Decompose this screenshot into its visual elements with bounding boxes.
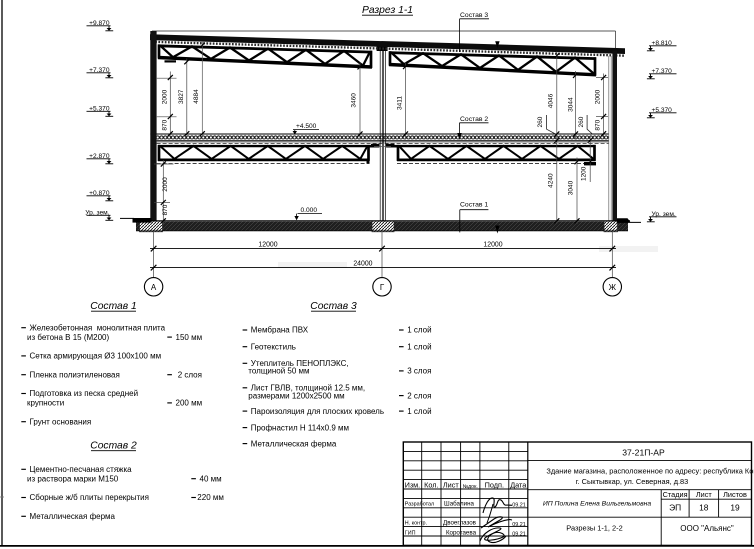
svg-text:Н. контр.: Н. контр. bbox=[405, 521, 427, 527]
svg-text:Пленка полиэтиленовая: Пленка полиэтиленовая bbox=[30, 370, 120, 379]
svg-text:ГИП: ГИП bbox=[405, 530, 416, 536]
svg-text:12000: 12000 bbox=[483, 242, 502, 249]
svg-text:Разработал: Разработал bbox=[405, 501, 434, 507]
svg-text:ООО "Альянс": ООО "Альянс" bbox=[680, 524, 734, 533]
svg-text:3460: 3460 bbox=[351, 93, 358, 108]
svg-text:24000: 24000 bbox=[353, 260, 372, 267]
svg-text:2000: 2000 bbox=[161, 89, 168, 104]
svg-text:Мембрана ПВХ: Мембрана ПВХ bbox=[251, 326, 309, 335]
svg-text:Состав 2: Состав 2 bbox=[460, 116, 488, 123]
svg-text:Изм.: Изм. bbox=[405, 481, 421, 490]
svg-text:Шабалина: Шабалина bbox=[444, 500, 474, 507]
svg-text:4046: 4046 bbox=[548, 93, 555, 108]
svg-text:Состав 3: Состав 3 bbox=[460, 12, 488, 19]
svg-text:3044: 3044 bbox=[567, 97, 574, 112]
svg-text:Сборные ж/б плиты перекрытия: Сборные ж/б плиты перекрытия bbox=[30, 493, 149, 502]
svg-text:870: 870 bbox=[594, 119, 601, 130]
svg-text:Состав 2: Состав 2 bbox=[90, 441, 137, 452]
svg-text:+4.500: +4.500 bbox=[296, 123, 317, 130]
svg-text:3411: 3411 bbox=[396, 96, 403, 110]
svg-text:ЭП: ЭП bbox=[669, 503, 681, 513]
svg-text:220 мм: 220 мм bbox=[197, 493, 224, 502]
svg-text:2000: 2000 bbox=[162, 177, 169, 192]
svg-text:Коротаева: Коротаева bbox=[446, 529, 477, 536]
svg-text:Дата: Дата bbox=[510, 481, 527, 490]
svg-text:Металлическая ферма: Металлическая ферма bbox=[30, 512, 116, 521]
svg-text:Грунт основания: Грунт основания bbox=[30, 417, 92, 426]
svg-text:Листов: Листов bbox=[723, 490, 747, 499]
svg-text:№док.: №док. bbox=[463, 484, 478, 490]
svg-text:19: 19 bbox=[730, 503, 740, 513]
svg-text:Сетка армирующая Ø3 100х100 мм: Сетка армирующая Ø3 100х100 мм bbox=[30, 352, 162, 361]
svg-text:2 слоя: 2 слоя bbox=[178, 370, 202, 379]
svg-text:3827: 3827 bbox=[178, 89, 185, 104]
svg-text:толщиной 50 мм: толщиной 50 мм bbox=[248, 367, 309, 376]
svg-text:А: А bbox=[151, 283, 157, 292]
svg-text:260: 260 bbox=[537, 116, 544, 127]
svg-text:Металлическая ферма: Металлическая ферма bbox=[251, 439, 337, 448]
svg-text:260: 260 bbox=[578, 116, 585, 127]
svg-text:200 мм: 200 мм bbox=[176, 399, 203, 408]
svg-text:12000: 12000 bbox=[258, 242, 277, 249]
svg-text:ИП Полина Елена Вильгельмовна: ИП Полина Елена Вильгельмовна bbox=[543, 501, 651, 508]
svg-text:Г: Г bbox=[380, 283, 385, 292]
svg-text:09.21: 09.21 bbox=[512, 502, 526, 508]
svg-text:Пароизоляция для плоских крове: Пароизоляция для плоских кровель bbox=[251, 407, 384, 416]
svg-text:г. Сыктывкар, ул. Северная, д.: г. Сыктывкар, ул. Северная, д.83 bbox=[576, 477, 689, 486]
svg-text:1 слой: 1 слой bbox=[407, 407, 431, 416]
svg-text:09.21: 09.21 bbox=[512, 522, 526, 528]
svg-text:из бетона В 15 (М200): из бетона В 15 (М200) bbox=[27, 333, 110, 342]
svg-text:Подготовка из песка средней: Подготовка из песка средней bbox=[30, 389, 139, 398]
svg-text:1200: 1200 bbox=[580, 166, 587, 181]
svg-text:Кол.: Кол. bbox=[424, 481, 438, 490]
svg-text:4240: 4240 bbox=[547, 173, 554, 188]
svg-text:Разрезы 1-1, 2-2: Разрезы 1-1, 2-2 bbox=[566, 524, 622, 533]
svg-text:Разрез 1-1: Разрез 1-1 bbox=[362, 5, 413, 16]
svg-text:Здание магазина, расположенное: Здание магазина, расположенное по адресу… bbox=[546, 467, 754, 476]
svg-text:0.000: 0.000 bbox=[301, 207, 318, 214]
svg-text:3040: 3040 bbox=[567, 180, 574, 195]
svg-text:3 слоя: 3 слоя bbox=[407, 367, 431, 376]
svg-text:2 слоя: 2 слоя bbox=[407, 391, 431, 400]
svg-text:Подп.: Подп. bbox=[485, 481, 504, 490]
svg-text:Цементно-песчаная стяжка: Цементно-песчаная стяжка bbox=[30, 465, 133, 474]
svg-text:37-21П-АР: 37-21П-АР bbox=[622, 447, 665, 457]
svg-text:Состав 1: Состав 1 bbox=[90, 301, 136, 312]
svg-text:Состав 3: Состав 3 bbox=[310, 301, 357, 312]
svg-text:из раствора марки М150: из раствора марки М150 bbox=[27, 474, 119, 483]
svg-text:Двоеглазов: Двоеглазов bbox=[443, 520, 477, 527]
svg-text:Профнастил Н 114х0.9 мм: Профнастил Н 114х0.9 мм bbox=[251, 423, 349, 432]
svg-text:1 слой: 1 слой bbox=[407, 326, 431, 335]
svg-text:Состав 1: Состав 1 bbox=[460, 202, 488, 209]
svg-text:крупности: крупности bbox=[27, 399, 64, 408]
svg-text:Стадия: Стадия bbox=[663, 490, 688, 499]
svg-text:Геотекстиль: Геотекстиль bbox=[251, 342, 296, 351]
svg-text:09.21: 09.21 bbox=[512, 531, 526, 537]
svg-text:размерами 1200х2500 мм: размерами 1200х2500 мм bbox=[248, 391, 344, 400]
svg-text:Лист: Лист bbox=[696, 490, 713, 499]
svg-text:870: 870 bbox=[161, 119, 168, 130]
svg-text:Лист: Лист bbox=[443, 481, 460, 490]
svg-text:Ж: Ж bbox=[609, 283, 617, 292]
svg-text:4884: 4884 bbox=[193, 89, 200, 104]
svg-text:870: 870 bbox=[162, 204, 169, 215]
svg-text:18: 18 bbox=[699, 503, 709, 513]
svg-text:2000: 2000 bbox=[594, 89, 601, 104]
svg-text:150 мм: 150 мм bbox=[176, 333, 203, 342]
svg-text:40 мм: 40 мм bbox=[200, 474, 222, 483]
svg-text:1 слой: 1 слой bbox=[407, 342, 431, 351]
svg-text:Железобетонная монолитная пли: Железобетонная монолитная плита bbox=[30, 323, 166, 332]
